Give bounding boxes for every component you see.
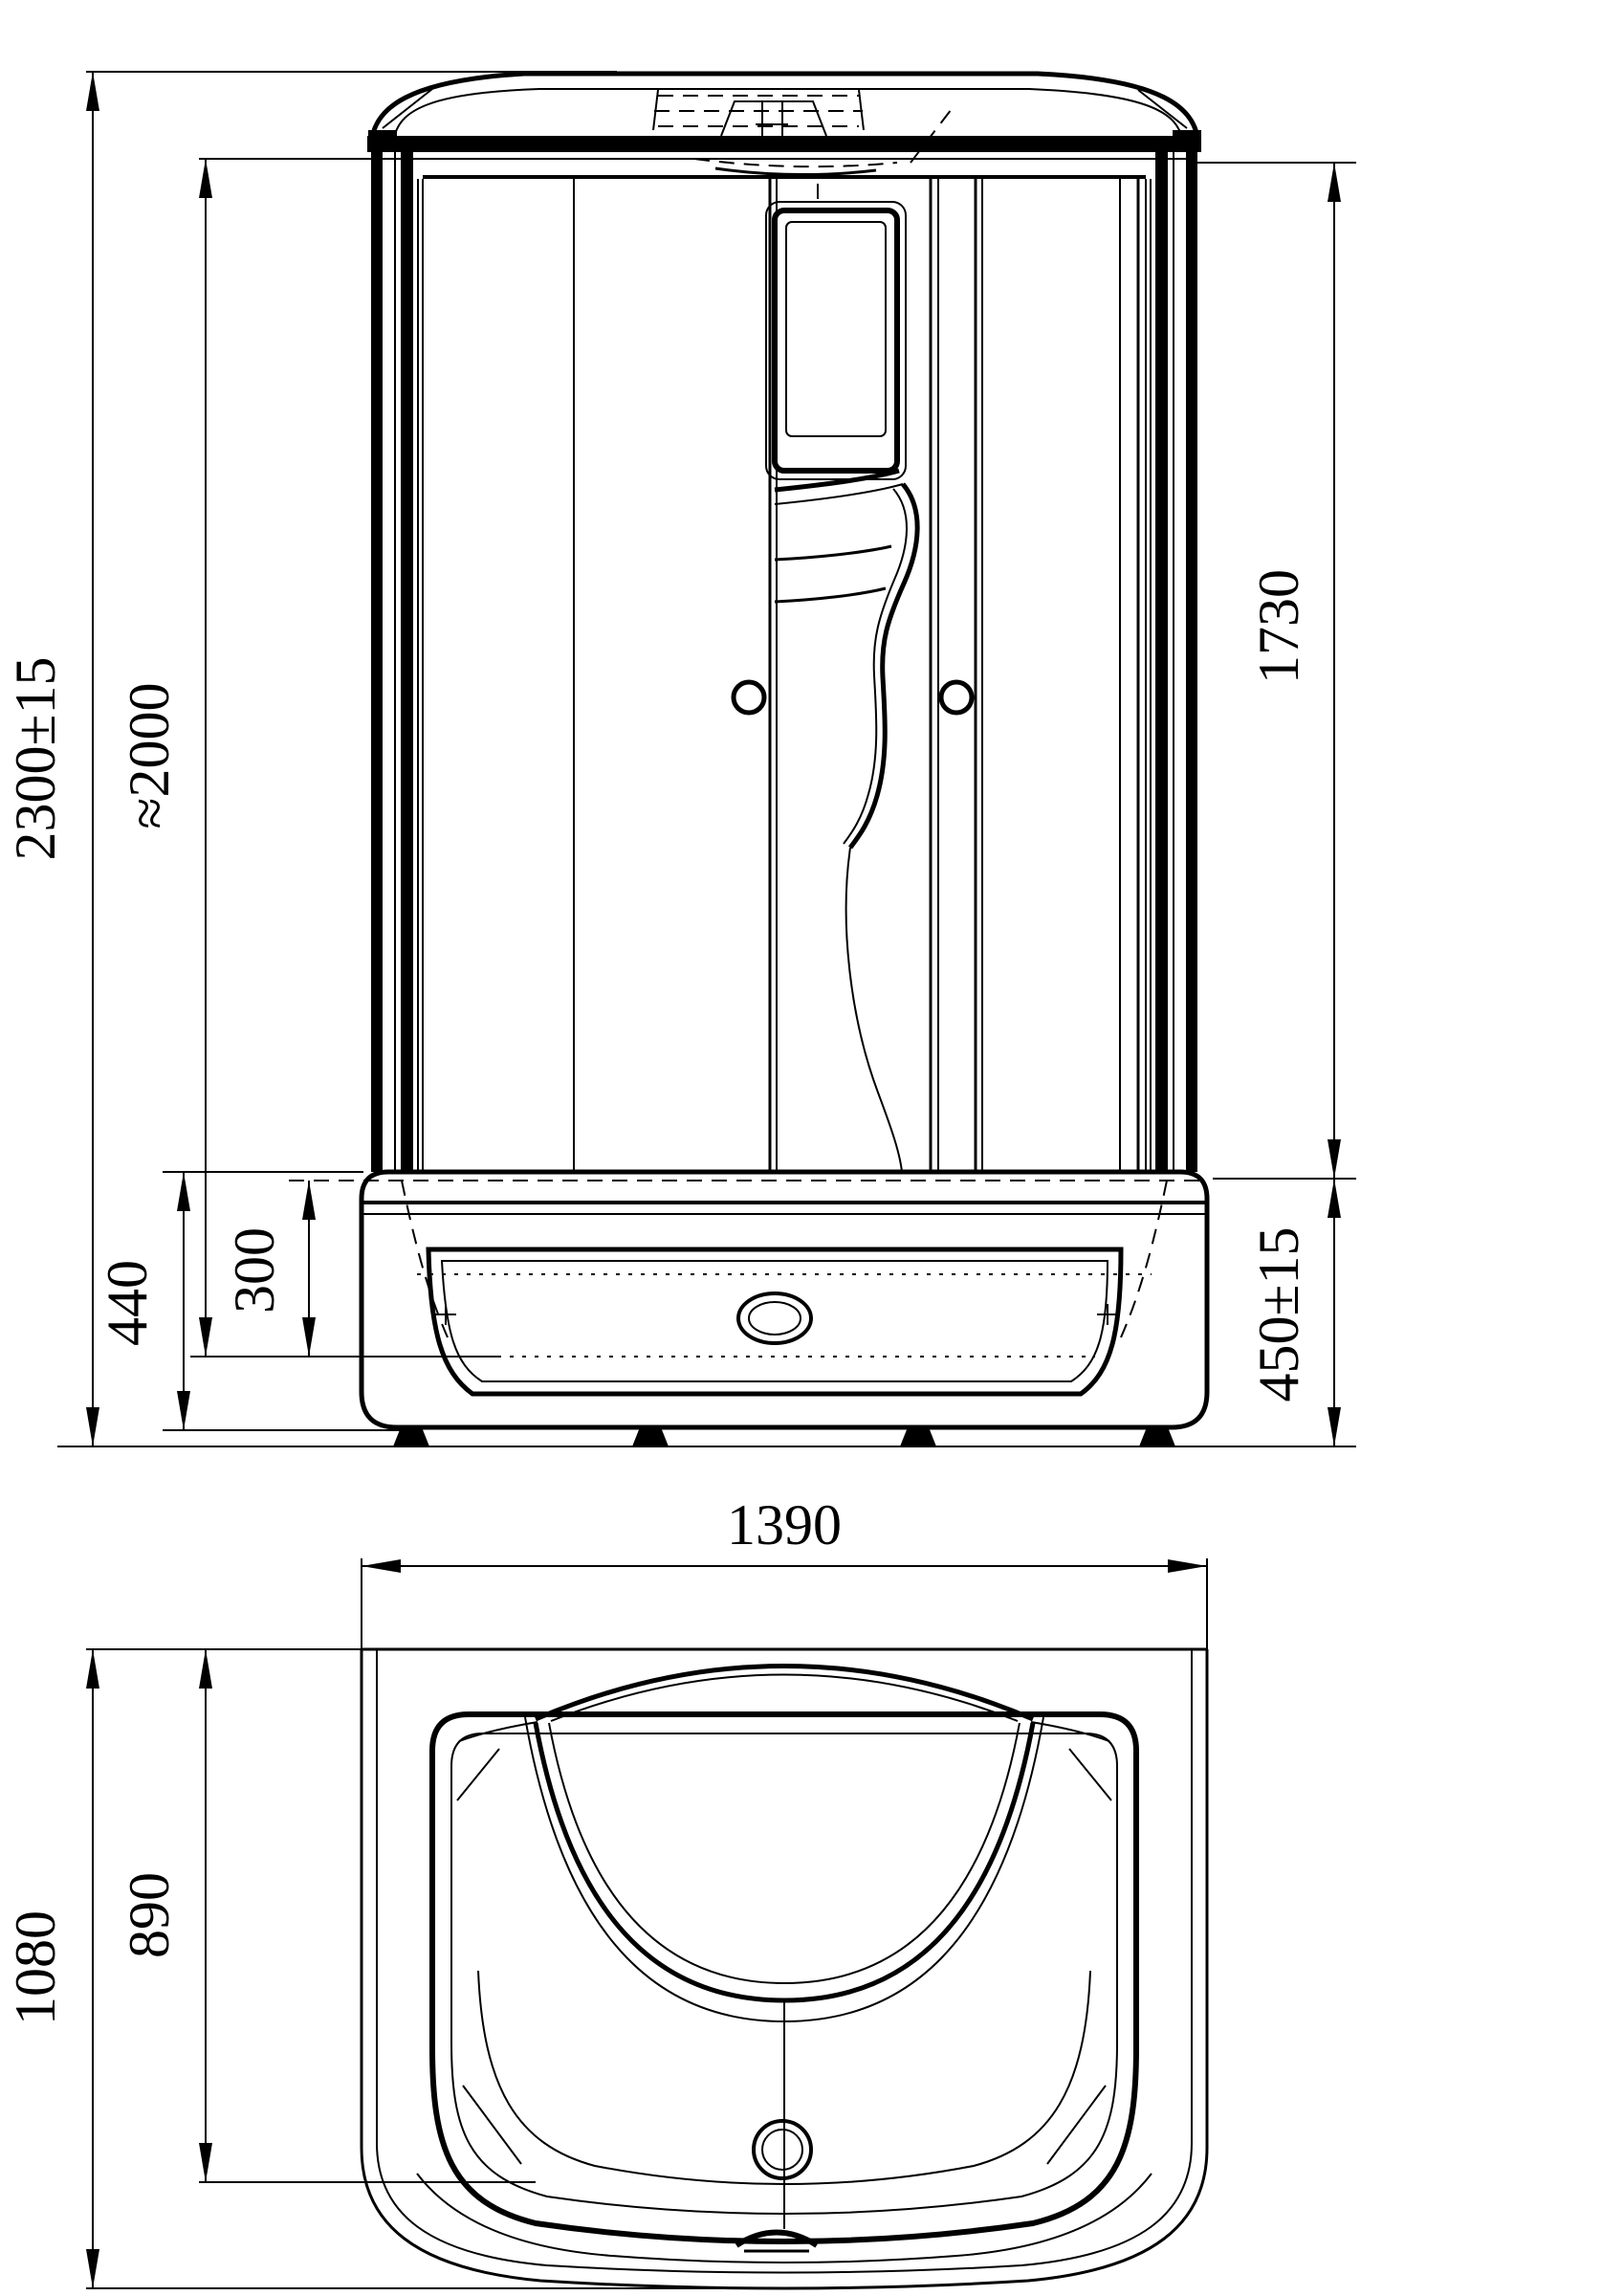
shelves-and-seat-profile (775, 471, 917, 1172)
seat-front-edge (536, 1723, 1033, 2000)
dim-label-tray-inner-depth: 300 (223, 1227, 286, 1314)
dim-label-tray-body-height: 440 (96, 1260, 159, 1346)
shower-spray-plate (694, 159, 897, 166)
left-column (371, 143, 423, 1172)
drain-inner-ring (762, 2130, 802, 2170)
plan-dimension-depth (86, 1649, 789, 2288)
dim-label-cabin-height: ≈2000 (118, 683, 181, 829)
dim-label-overall-width: 1390 (727, 1493, 842, 1556)
drawing-sheet: 2300±15 ≈2000 440 300 1730 450±15 (0, 0, 1602, 2296)
plan-seat (459, 1667, 1109, 2230)
plan-view: 1390 1080 890 (4, 1493, 1207, 2288)
shelf-upper (775, 546, 891, 560)
dim-label-glass-height: 1730 (1247, 569, 1310, 684)
front-elevation-view: 2300±15 ≈2000 440 300 1730 450±15 (4, 72, 1356, 1446)
left-door-handle (734, 682, 764, 713)
tray-outline (362, 1172, 1207, 1427)
tray-apron (428, 1249, 1121, 1394)
right-door-handle (941, 682, 972, 713)
dim-label-overall-height: 2300±15 (4, 657, 67, 861)
plan-dimension-width (362, 1558, 1207, 1649)
dim-label-inner-depth: 890 (118, 1872, 181, 1958)
dim-label-overall-depth: 1080 (4, 1910, 67, 2025)
technical-drawing: 2300±15 ≈2000 440 300 1730 450±15 (0, 0, 1602, 2296)
roof (367, 74, 1201, 152)
mirror-glass (786, 222, 886, 436)
dim-label-tray-height-with-feet: 450±15 (1247, 1227, 1310, 1402)
glass-panels-and-doors (574, 179, 1138, 1172)
roof-band (367, 136, 1201, 152)
shelf-lower (775, 588, 886, 602)
mirror-panel (766, 202, 906, 479)
tray-feet (393, 1427, 1175, 1446)
right-column (1146, 143, 1197, 1172)
shower-tray-front (289, 1172, 1207, 1446)
mirror-frame (775, 210, 897, 471)
